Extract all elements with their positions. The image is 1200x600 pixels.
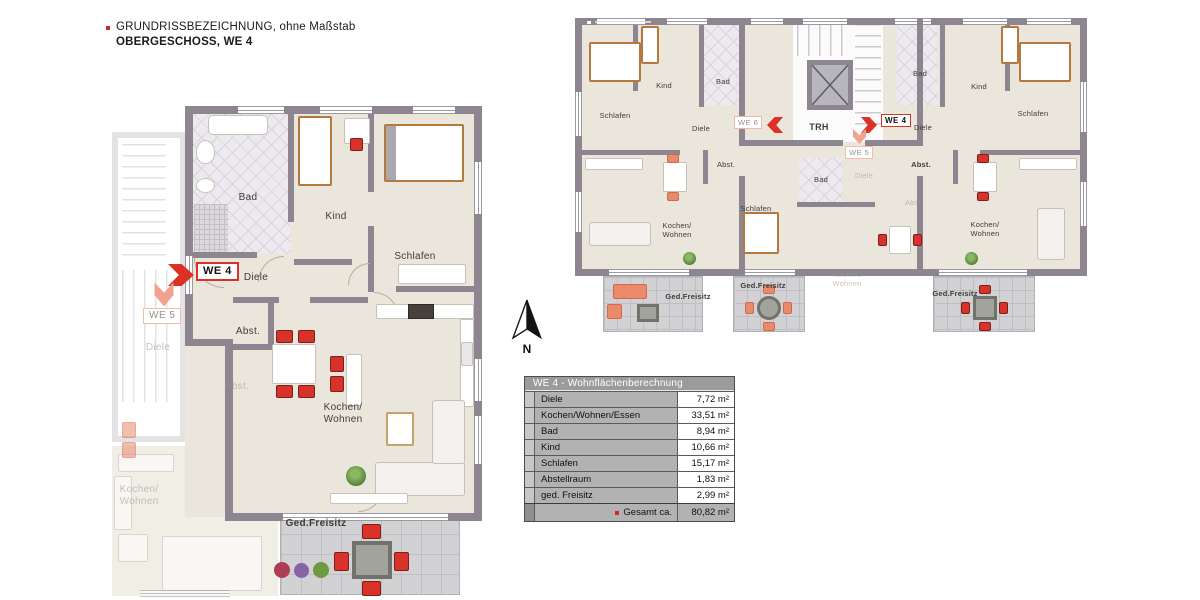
dining-table [272, 344, 316, 384]
legend-bullet-icon [106, 26, 110, 30]
sofa [432, 400, 465, 464]
kitchen-counter [585, 158, 643, 170]
wall [268, 297, 274, 349]
neighbor-armchair [118, 534, 148, 562]
we5-label-schlafen: Schlafen [731, 204, 781, 213]
legend: GRUNDRISSBEZEICHNUNG, ohne Maßstab OBERG… [106, 21, 355, 48]
overview-floor-plan: Schlafen Kind Bad Diele Abst. Kochen/ Wo… [575, 12, 1087, 352]
we4-label-abst: Abst. [901, 160, 941, 169]
bench-chair [330, 356, 344, 372]
wall [225, 339, 233, 521]
window [1080, 82, 1087, 132]
window [939, 269, 1027, 276]
wall [582, 150, 680, 155]
room-label-abst: Abst. [226, 326, 270, 338]
we5-label-kochen-wohnen: Kochen/ Wohnen [821, 270, 873, 288]
row-label: Bad [535, 424, 678, 439]
elevator-x-icon [812, 65, 848, 105]
table-row: Abstellraum 1,83 m² [525, 471, 734, 487]
bath-tiles-we6 [703, 25, 741, 105]
row-stripe [525, 392, 535, 407]
we5-badge: WE 5 [143, 308, 181, 324]
row-stripe [525, 488, 535, 503]
table-row: ged. Freisitz 2,99 m² [525, 487, 734, 503]
room-label-bad: Bad [226, 192, 270, 204]
dining-chair [276, 385, 293, 398]
kitchen-island [346, 354, 362, 406]
terrace-chair [979, 322, 991, 331]
window [963, 18, 1007, 25]
room-label-kind: Kind [312, 211, 360, 223]
double-bed [384, 124, 464, 182]
dining-table [973, 162, 997, 192]
neighbor-sofa [162, 536, 262, 591]
plant-icon [346, 466, 366, 486]
area-table-title: WE 4 - Wohnflächenberechnung [525, 377, 734, 391]
bed-headboard [386, 126, 396, 180]
sofa [1037, 208, 1065, 260]
row-label: Kind [535, 440, 678, 455]
legend-line2: OBERGESCHOSS, WE 4 [116, 36, 355, 48]
window [474, 162, 482, 214]
north-label: N [505, 342, 549, 356]
terrace-chair [999, 302, 1008, 314]
dining-table [889, 226, 911, 254]
total-label: Gesamt ca. [535, 504, 678, 521]
terrace-table [352, 541, 392, 579]
terrace-table [757, 296, 781, 320]
window [751, 18, 783, 25]
room-label-abst2: Abst. [215, 381, 259, 393]
sofa [375, 462, 465, 496]
sideboard [330, 493, 408, 504]
elevator [807, 60, 853, 110]
row-stripe [525, 440, 535, 455]
dining-chair [276, 330, 293, 343]
total-bullet-icon [615, 511, 619, 515]
window [474, 359, 482, 401]
row-stripe [525, 504, 535, 521]
we4-label-kochen-wohnen: Kochen/ Wohnen [959, 220, 1011, 238]
row-stripe [525, 472, 535, 487]
flower-pot-icon [274, 562, 290, 578]
dining-chair [913, 234, 922, 246]
we4-label-kind: Kind [957, 82, 1001, 91]
dining-chair [298, 330, 315, 343]
floor-plan-sheet: GRUNDRISSBEZEICHNUNG, ohne Maßstab OBERG… [0, 0, 1200, 600]
wall [699, 25, 704, 107]
kitchen-counter [1019, 158, 1077, 170]
bed [589, 42, 641, 82]
we5-label-bad: Bad [801, 175, 841, 184]
wall [448, 513, 482, 521]
row-stripe [525, 424, 535, 439]
table-row: Kochen/Wohnen/Essen 33,51 m² [525, 407, 734, 423]
row-label: Kochen/Wohnen/Essen [535, 408, 678, 423]
window [803, 18, 847, 25]
bed [1019, 42, 1071, 82]
window [474, 416, 482, 464]
row-value: 33,51 m² [678, 408, 734, 423]
row-label: Schlafen [535, 456, 678, 471]
sofa [589, 222, 651, 246]
row-label: Abstellraum [535, 472, 678, 487]
terrace-chair [745, 302, 754, 314]
we6-label-ged-freisitz: Ged.Freisitz [658, 292, 718, 301]
flower-pot-icon [294, 563, 309, 578]
terrace-chair [362, 524, 381, 539]
total-value: 80,82 m² [678, 504, 734, 521]
bed [743, 212, 779, 254]
wall [865, 140, 923, 146]
child-bed [1001, 26, 1019, 64]
stove [408, 304, 434, 319]
row-stripe [525, 408, 535, 423]
we4-label-schlafen: Schlafen [1008, 109, 1058, 118]
we4-label-bad: Bad [900, 69, 940, 78]
flower-pot-icon [313, 562, 329, 578]
we6-label-bad: Bad [703, 77, 743, 86]
table-row: Schlafen 15,17 m² [525, 455, 734, 471]
we5-label-abst: Abst. [894, 198, 934, 207]
terrace-chair [961, 302, 970, 314]
wall [953, 150, 958, 184]
sink [196, 178, 215, 193]
we5-label-diele: Diele [844, 171, 884, 180]
we4-badge: WE 4 [196, 262, 239, 281]
row-value: 7,72 m² [678, 392, 734, 407]
child-bed [298, 116, 332, 186]
desk-chair [350, 138, 363, 151]
wall [185, 106, 193, 346]
wall [980, 150, 1080, 155]
we6-label-abst: Abst. [706, 160, 746, 169]
we4-badge: WE 4 [881, 114, 911, 127]
child-bed [641, 26, 659, 64]
table-row: Kind 10,66 m² [525, 439, 734, 455]
wall [797, 202, 875, 207]
wall [917, 176, 923, 276]
area-table: WE 4 - Wohnflächenberechnung Diele 7,72 … [524, 376, 735, 522]
wall [233, 344, 274, 350]
room-label-kochen-wohnen: Kochen/ Wohnen [311, 402, 375, 425]
stairs-icon [122, 144, 166, 262]
legend-text: GRUNDRISSBEZEICHNUNG, ohne Maßstab OBERG… [116, 21, 355, 48]
terrace-chair [783, 302, 792, 314]
window [575, 192, 582, 232]
plant-icon [683, 252, 696, 265]
wall [310, 297, 368, 303]
table-row: Diele 7,72 m² [525, 391, 734, 407]
terrace-sofa [613, 284, 647, 299]
bench-chair [330, 376, 344, 392]
wall [294, 259, 352, 265]
detail-floor-plan-we4: Bad Kind Schlafen Diele Abst. Abst. Koch… [110, 104, 482, 597]
terrace-table [637, 304, 659, 322]
wall [739, 140, 843, 146]
dining-chair [298, 385, 315, 398]
terrace-sofa [607, 304, 622, 319]
neighbor-label-kochen-wohnen: Kochen/ Wohnen [110, 484, 168, 507]
room-label-diele: Diele [234, 272, 278, 284]
north-compass: N [505, 298, 555, 360]
wardrobe [398, 264, 466, 284]
terrace-chair [763, 322, 775, 331]
row-stripe [525, 456, 535, 471]
dining-chair [977, 192, 989, 201]
window [743, 269, 795, 276]
room-label-ged-freisitz: Ged.Freisitz [278, 518, 354, 530]
shower-mosaic [194, 204, 228, 252]
terrace-table [973, 296, 997, 320]
neighbor-chair [122, 422, 136, 438]
window [1080, 182, 1087, 226]
plant-icon [965, 252, 978, 265]
dining-chair [667, 154, 679, 163]
terrace-chair [394, 552, 409, 571]
window [413, 106, 455, 114]
we6-label-kochen-wohnen: Kochen/ Wohnen [651, 221, 703, 239]
neighbor-chair [122, 442, 136, 458]
row-value: 10,66 m² [678, 440, 734, 455]
window [575, 92, 582, 136]
we6-badge: WE 6 [734, 116, 762, 129]
legend-line1: GRUNDRISSBEZEICHNUNG, ohne Maßstab [116, 21, 355, 33]
total-label-text: Gesamt ca. [623, 507, 672, 518]
row-value: 8,94 m² [678, 424, 734, 439]
wall [225, 513, 283, 521]
room-label-schlafen: Schlafen [382, 251, 448, 263]
wall [288, 114, 294, 222]
wall [940, 25, 945, 107]
row-label: Diele [535, 392, 678, 407]
we4-label-ged-freisitz: Ged.Freisitz [925, 289, 985, 298]
dining-chair [977, 154, 989, 163]
we6-label-schlafen: Schlafen [590, 111, 640, 120]
neighbor-label-diele: Diele [136, 342, 180, 354]
stairwell-label-trh: TRH [801, 122, 837, 132]
table-total-row: Gesamt ca. 80,82 m² [525, 503, 734, 521]
kitchen-sink [461, 342, 473, 366]
window [320, 106, 372, 114]
row-value: 15,17 m² [678, 456, 734, 471]
dining-chair [878, 234, 887, 246]
row-value: 1,83 m² [678, 472, 734, 487]
we6-label-kind: Kind [642, 81, 686, 90]
table-row: Bad 8,94 m² [525, 423, 734, 439]
we5-label-ged-freisitz: Ged.Freisitz [733, 281, 793, 290]
row-value: 2,99 m² [678, 488, 734, 503]
we5-badge: WE 5 [845, 146, 873, 159]
toilet [196, 140, 215, 164]
dining-table [663, 162, 687, 192]
wall [396, 286, 474, 292]
wall [1080, 18, 1087, 276]
window [238, 106, 284, 114]
wall [575, 18, 582, 276]
plan-annotation-marker [595, 21, 651, 23]
window [895, 18, 931, 25]
row-label: ged. Freisitz [535, 488, 678, 503]
dining-chair [667, 192, 679, 201]
window [667, 18, 707, 25]
we6-label-diele: Diele [679, 124, 723, 133]
window [609, 269, 689, 276]
window [140, 590, 230, 597]
window [1027, 18, 1071, 25]
coffee-table [386, 412, 414, 446]
bathtub [208, 115, 268, 135]
plan-annotation-marker [587, 21, 591, 24]
terrace-chair [334, 552, 349, 571]
north-arrow-icon [505, 298, 549, 342]
stairs-icon [797, 24, 851, 56]
terrace-chair [362, 581, 381, 596]
